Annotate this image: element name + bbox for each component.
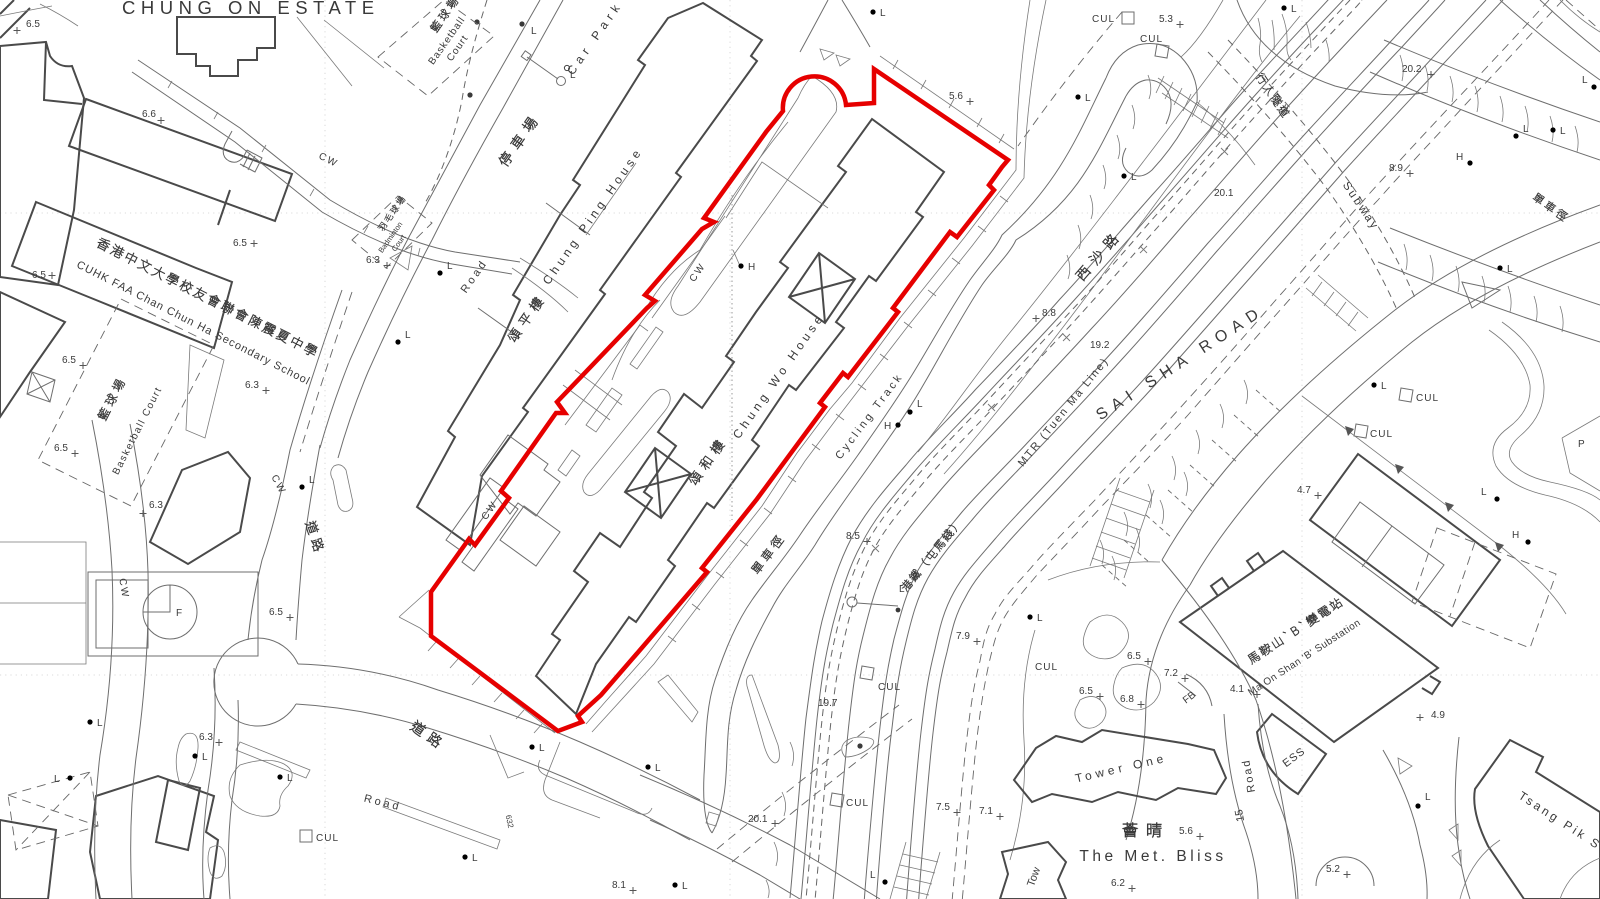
svg-text:6.2: 6.2	[1111, 878, 1125, 889]
svg-text:7.5: 7.5	[936, 802, 950, 813]
svg-text:L: L	[447, 261, 453, 272]
svg-text:F: F	[176, 608, 182, 619]
svg-text:L: L	[682, 881, 688, 892]
svg-text:L: L	[287, 773, 293, 784]
svg-text:L: L	[1291, 4, 1297, 15]
svg-text:L: L	[1085, 93, 1091, 104]
svg-text:CUL: CUL	[1416, 393, 1439, 404]
svg-text:L: L	[1037, 613, 1043, 624]
svg-text:6.3: 6.3	[149, 500, 163, 511]
svg-text:6.5: 6.5	[32, 270, 46, 281]
svg-text:6.8: 6.8	[1120, 694, 1134, 705]
svg-text:4.7: 4.7	[1297, 485, 1311, 496]
svg-text:L: L	[1560, 126, 1566, 137]
svg-text:L: L	[655, 763, 661, 774]
svg-text:The Met. Bliss: The Met. Bliss	[1079, 848, 1226, 865]
svg-text:6.5: 6.5	[233, 238, 247, 249]
svg-text:8.9: 8.9	[1389, 163, 1403, 174]
svg-text:L: L	[54, 774, 60, 785]
svg-text:8.1: 8.1	[612, 880, 626, 891]
svg-text:8.8: 8.8	[1042, 308, 1056, 319]
svg-text:H: H	[884, 421, 891, 432]
svg-text:CHUNG ON ESTATE: CHUNG ON ESTATE	[122, 0, 380, 18]
svg-text:4.9: 4.9	[1431, 710, 1445, 721]
svg-text:L: L	[1481, 487, 1487, 498]
svg-text:L: L	[97, 718, 103, 729]
svg-text:L: L	[539, 743, 545, 754]
svg-text:6.5: 6.5	[26, 19, 40, 30]
svg-text:20.2: 20.2	[1402, 64, 1422, 75]
svg-text:5.6: 5.6	[1179, 826, 1193, 837]
svg-text:6.5: 6.5	[54, 443, 68, 454]
svg-text:L: L	[1425, 792, 1431, 803]
svg-text:6.6: 6.6	[142, 109, 156, 120]
svg-text:CUL: CUL	[878, 682, 901, 693]
svg-text:6.5: 6.5	[1127, 651, 1141, 662]
svg-text:L: L	[531, 26, 537, 37]
svg-text:CUL: CUL	[1092, 14, 1115, 25]
svg-text:L: L	[1381, 381, 1387, 392]
svg-text:7.1: 7.1	[979, 806, 993, 817]
svg-text:7.2: 7.2	[1164, 668, 1178, 679]
svg-text:L: L	[309, 475, 315, 486]
svg-text:P: P	[1578, 439, 1585, 450]
svg-text:CUL: CUL	[1140, 34, 1163, 45]
svg-text:20.1: 20.1	[748, 814, 768, 825]
svg-text:L: L	[202, 752, 208, 763]
svg-text:20.1: 20.1	[1214, 188, 1234, 199]
svg-text:L: L	[870, 870, 876, 881]
svg-text:L: L	[1507, 264, 1513, 275]
svg-text:L: L	[1523, 124, 1529, 135]
svg-text:8.5: 8.5	[846, 531, 860, 542]
svg-text:7.9: 7.9	[956, 631, 970, 642]
svg-text:L: L	[1131, 172, 1137, 183]
svg-text:L: L	[570, 70, 576, 81]
svg-text:6.5: 6.5	[269, 607, 283, 618]
svg-text:5.6: 5.6	[949, 91, 963, 102]
svg-text:15: 15	[1233, 808, 1247, 822]
svg-text:H: H	[1512, 530, 1519, 541]
svg-text:6.3: 6.3	[366, 255, 380, 266]
svg-text:CUL: CUL	[316, 833, 339, 844]
svg-text:6.5: 6.5	[1079, 686, 1093, 697]
svg-text:5.2: 5.2	[1326, 864, 1340, 875]
svg-text:L: L	[917, 399, 923, 410]
svg-text:L: L	[405, 330, 411, 341]
svg-text:CUL: CUL	[1035, 662, 1058, 673]
svg-text:L: L	[1582, 75, 1588, 86]
svg-text:CUL: CUL	[846, 798, 869, 809]
svg-text:6.5: 6.5	[62, 355, 76, 366]
svg-text:5.3: 5.3	[1159, 14, 1173, 25]
svg-text:L: L	[880, 8, 886, 19]
svg-text:6.3: 6.3	[199, 732, 213, 743]
svg-text:19.2: 19.2	[1090, 340, 1110, 351]
svg-text:19.7: 19.7	[818, 698, 838, 709]
svg-text:L: L	[899, 584, 905, 595]
svg-text:4.1: 4.1	[1230, 684, 1244, 695]
svg-text:L: L	[472, 853, 478, 864]
svg-text:H: H	[1456, 152, 1463, 163]
svg-text:CUL: CUL	[1370, 429, 1393, 440]
svg-text:H: H	[748, 262, 755, 273]
svg-text:6.3: 6.3	[245, 380, 259, 391]
